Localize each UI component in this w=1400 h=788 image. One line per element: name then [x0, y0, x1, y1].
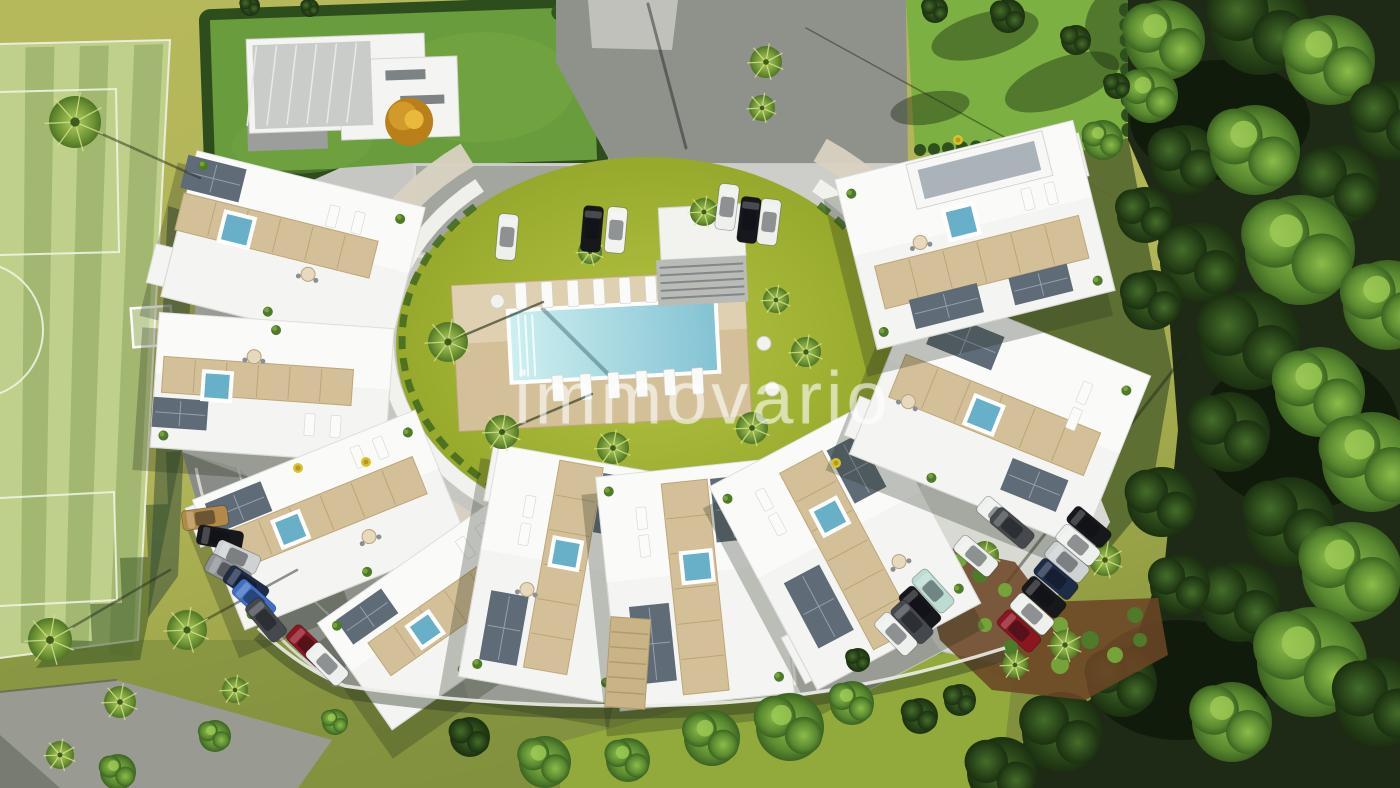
flower-bush	[361, 457, 371, 467]
plunge-pool	[678, 548, 715, 585]
render-canvas	[0, 0, 1400, 788]
driveway	[556, 0, 908, 176]
plunge-pool	[547, 535, 584, 572]
flower-bush	[831, 458, 841, 468]
car	[495, 213, 519, 261]
car	[604, 206, 628, 254]
pergola	[605, 617, 651, 710]
tree	[99, 754, 136, 788]
plunge-pool	[200, 369, 234, 403]
flower-bush	[293, 463, 303, 473]
aerial-site-render: immovario	[0, 0, 1400, 788]
villa-garden	[204, 1, 602, 179]
solar-panel	[152, 397, 209, 431]
flower-bush	[953, 135, 963, 145]
car	[580, 205, 604, 253]
